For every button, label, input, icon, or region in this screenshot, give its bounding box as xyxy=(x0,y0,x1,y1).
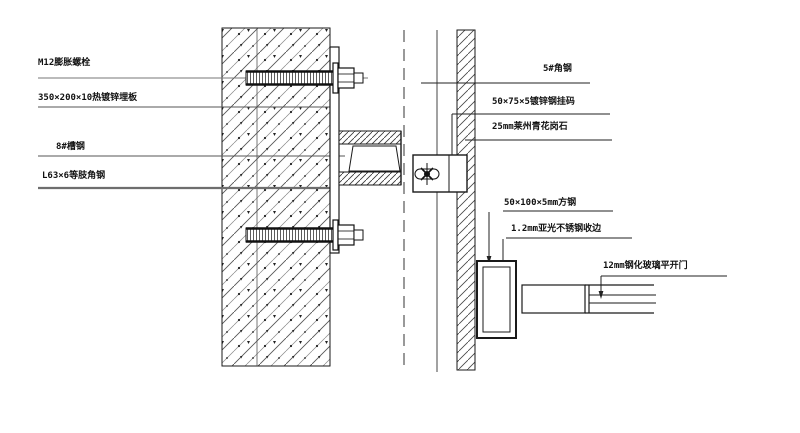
channel-web xyxy=(349,146,400,171)
label-hanger: 50×75×5镀锌钢挂码 xyxy=(492,97,575,107)
bolt-nut xyxy=(338,68,354,88)
channel-steel-section xyxy=(339,131,401,185)
bolt-washer xyxy=(333,220,338,250)
door-stile xyxy=(522,285,585,313)
arrow-square-tube xyxy=(487,212,492,264)
label-angle-5: 5#角钢 xyxy=(543,64,572,74)
square-steel-tube xyxy=(477,261,516,338)
label-granite: 25mm莱州青花岗石 xyxy=(492,122,568,132)
cad-detail-drawing: M12膨胀螺栓 350×200×10热镀锌埋板 8#槽钢 L63×6等肢角钢 5… xyxy=(0,0,800,433)
bolt-washer xyxy=(333,63,338,93)
label-angle-steel: L63×6等肢角钢 xyxy=(42,171,105,181)
bolt-nut xyxy=(338,225,354,245)
label-stainless: 1.2mm亚光不锈钢收边 xyxy=(511,224,601,234)
stone-hanger xyxy=(413,155,467,192)
granite-panel xyxy=(457,30,475,370)
label-embed-plate: 350×200×10热镀锌埋板 xyxy=(38,93,137,103)
drawing-canvas xyxy=(0,0,800,433)
label-glass-door: 12mm钢化玻璃平开门 xyxy=(603,261,688,271)
label-square-tube: 50×100×5mm方钢 xyxy=(504,198,576,208)
arrow-glass-door xyxy=(599,276,604,299)
bolt-tip xyxy=(354,73,363,83)
bolt-tip xyxy=(354,230,363,240)
channel-top-flange xyxy=(339,131,401,144)
channel-bottom-flange xyxy=(339,172,401,185)
label-m12-bolt: M12膨胀螺栓 xyxy=(38,58,90,68)
glass-door-plan xyxy=(522,285,656,313)
label-channel-steel: 8#槽钢 xyxy=(56,142,85,152)
